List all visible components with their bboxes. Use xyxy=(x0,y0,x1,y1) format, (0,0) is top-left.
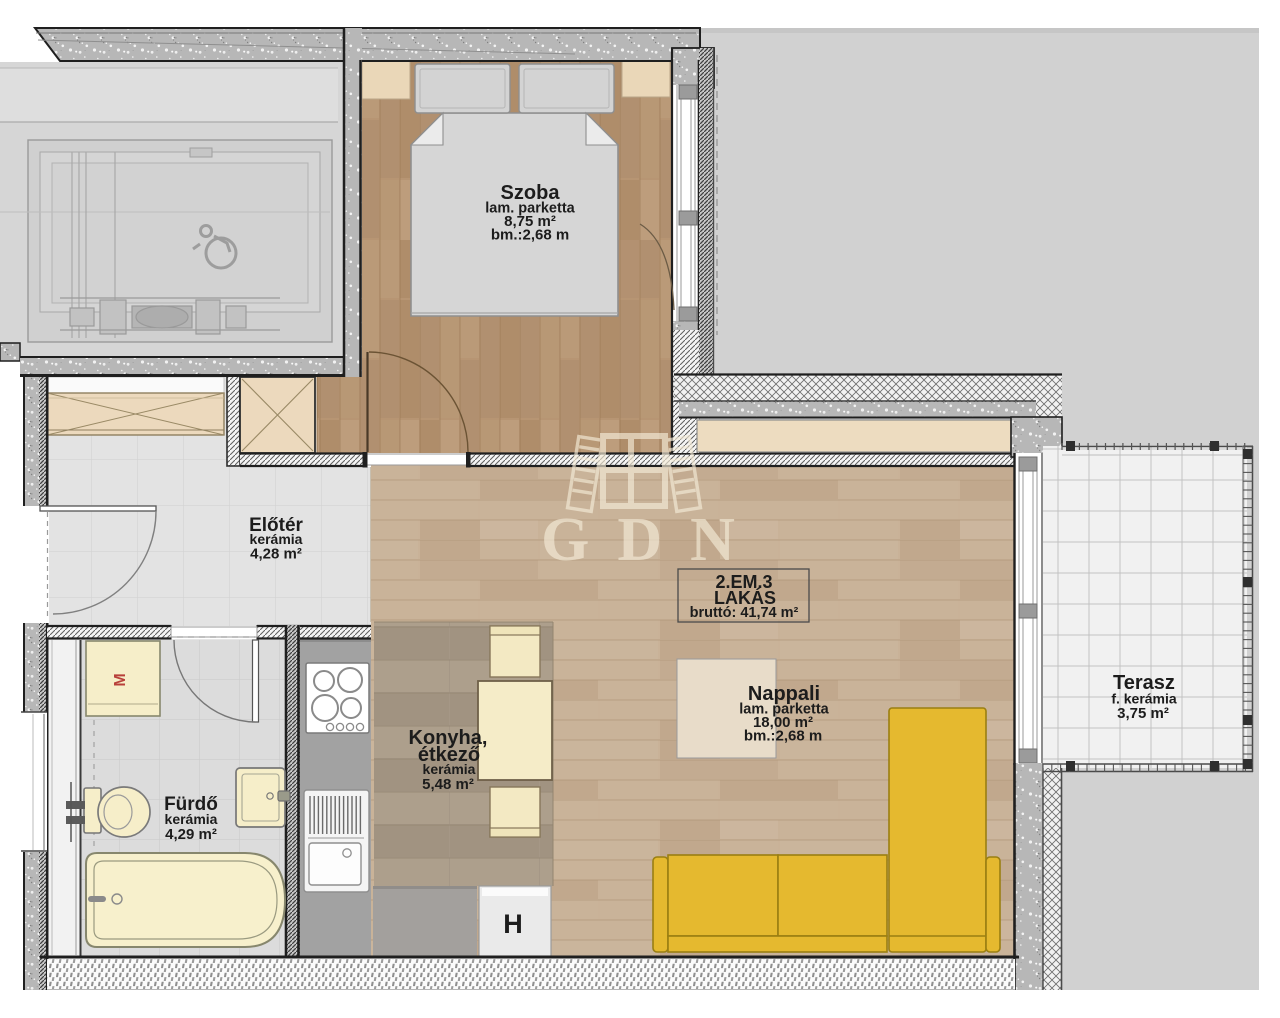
svg-text:H: H xyxy=(503,909,523,939)
svg-text:bruttó: 41,74 m²: bruttó: 41,74 m² xyxy=(690,605,799,621)
svg-text:M: M xyxy=(112,673,129,686)
svg-text:3,75 m²: 3,75 m² xyxy=(1117,705,1169,722)
svg-text:kerámia: kerámia xyxy=(423,761,476,777)
svg-text:bm.:2,68 m: bm.:2,68 m xyxy=(744,728,822,745)
svg-text:bm.:2,68 m: bm.:2,68 m xyxy=(491,227,569,244)
svg-text:5,48 m²: 5,48 m² xyxy=(422,776,474,793)
svg-text:GDN: GDN xyxy=(541,506,763,574)
svg-text:kerámia: kerámia xyxy=(165,811,218,827)
svg-text:4,28 m²: 4,28 m² xyxy=(250,546,302,563)
svg-text:4,29 m²: 4,29 m² xyxy=(165,826,217,843)
